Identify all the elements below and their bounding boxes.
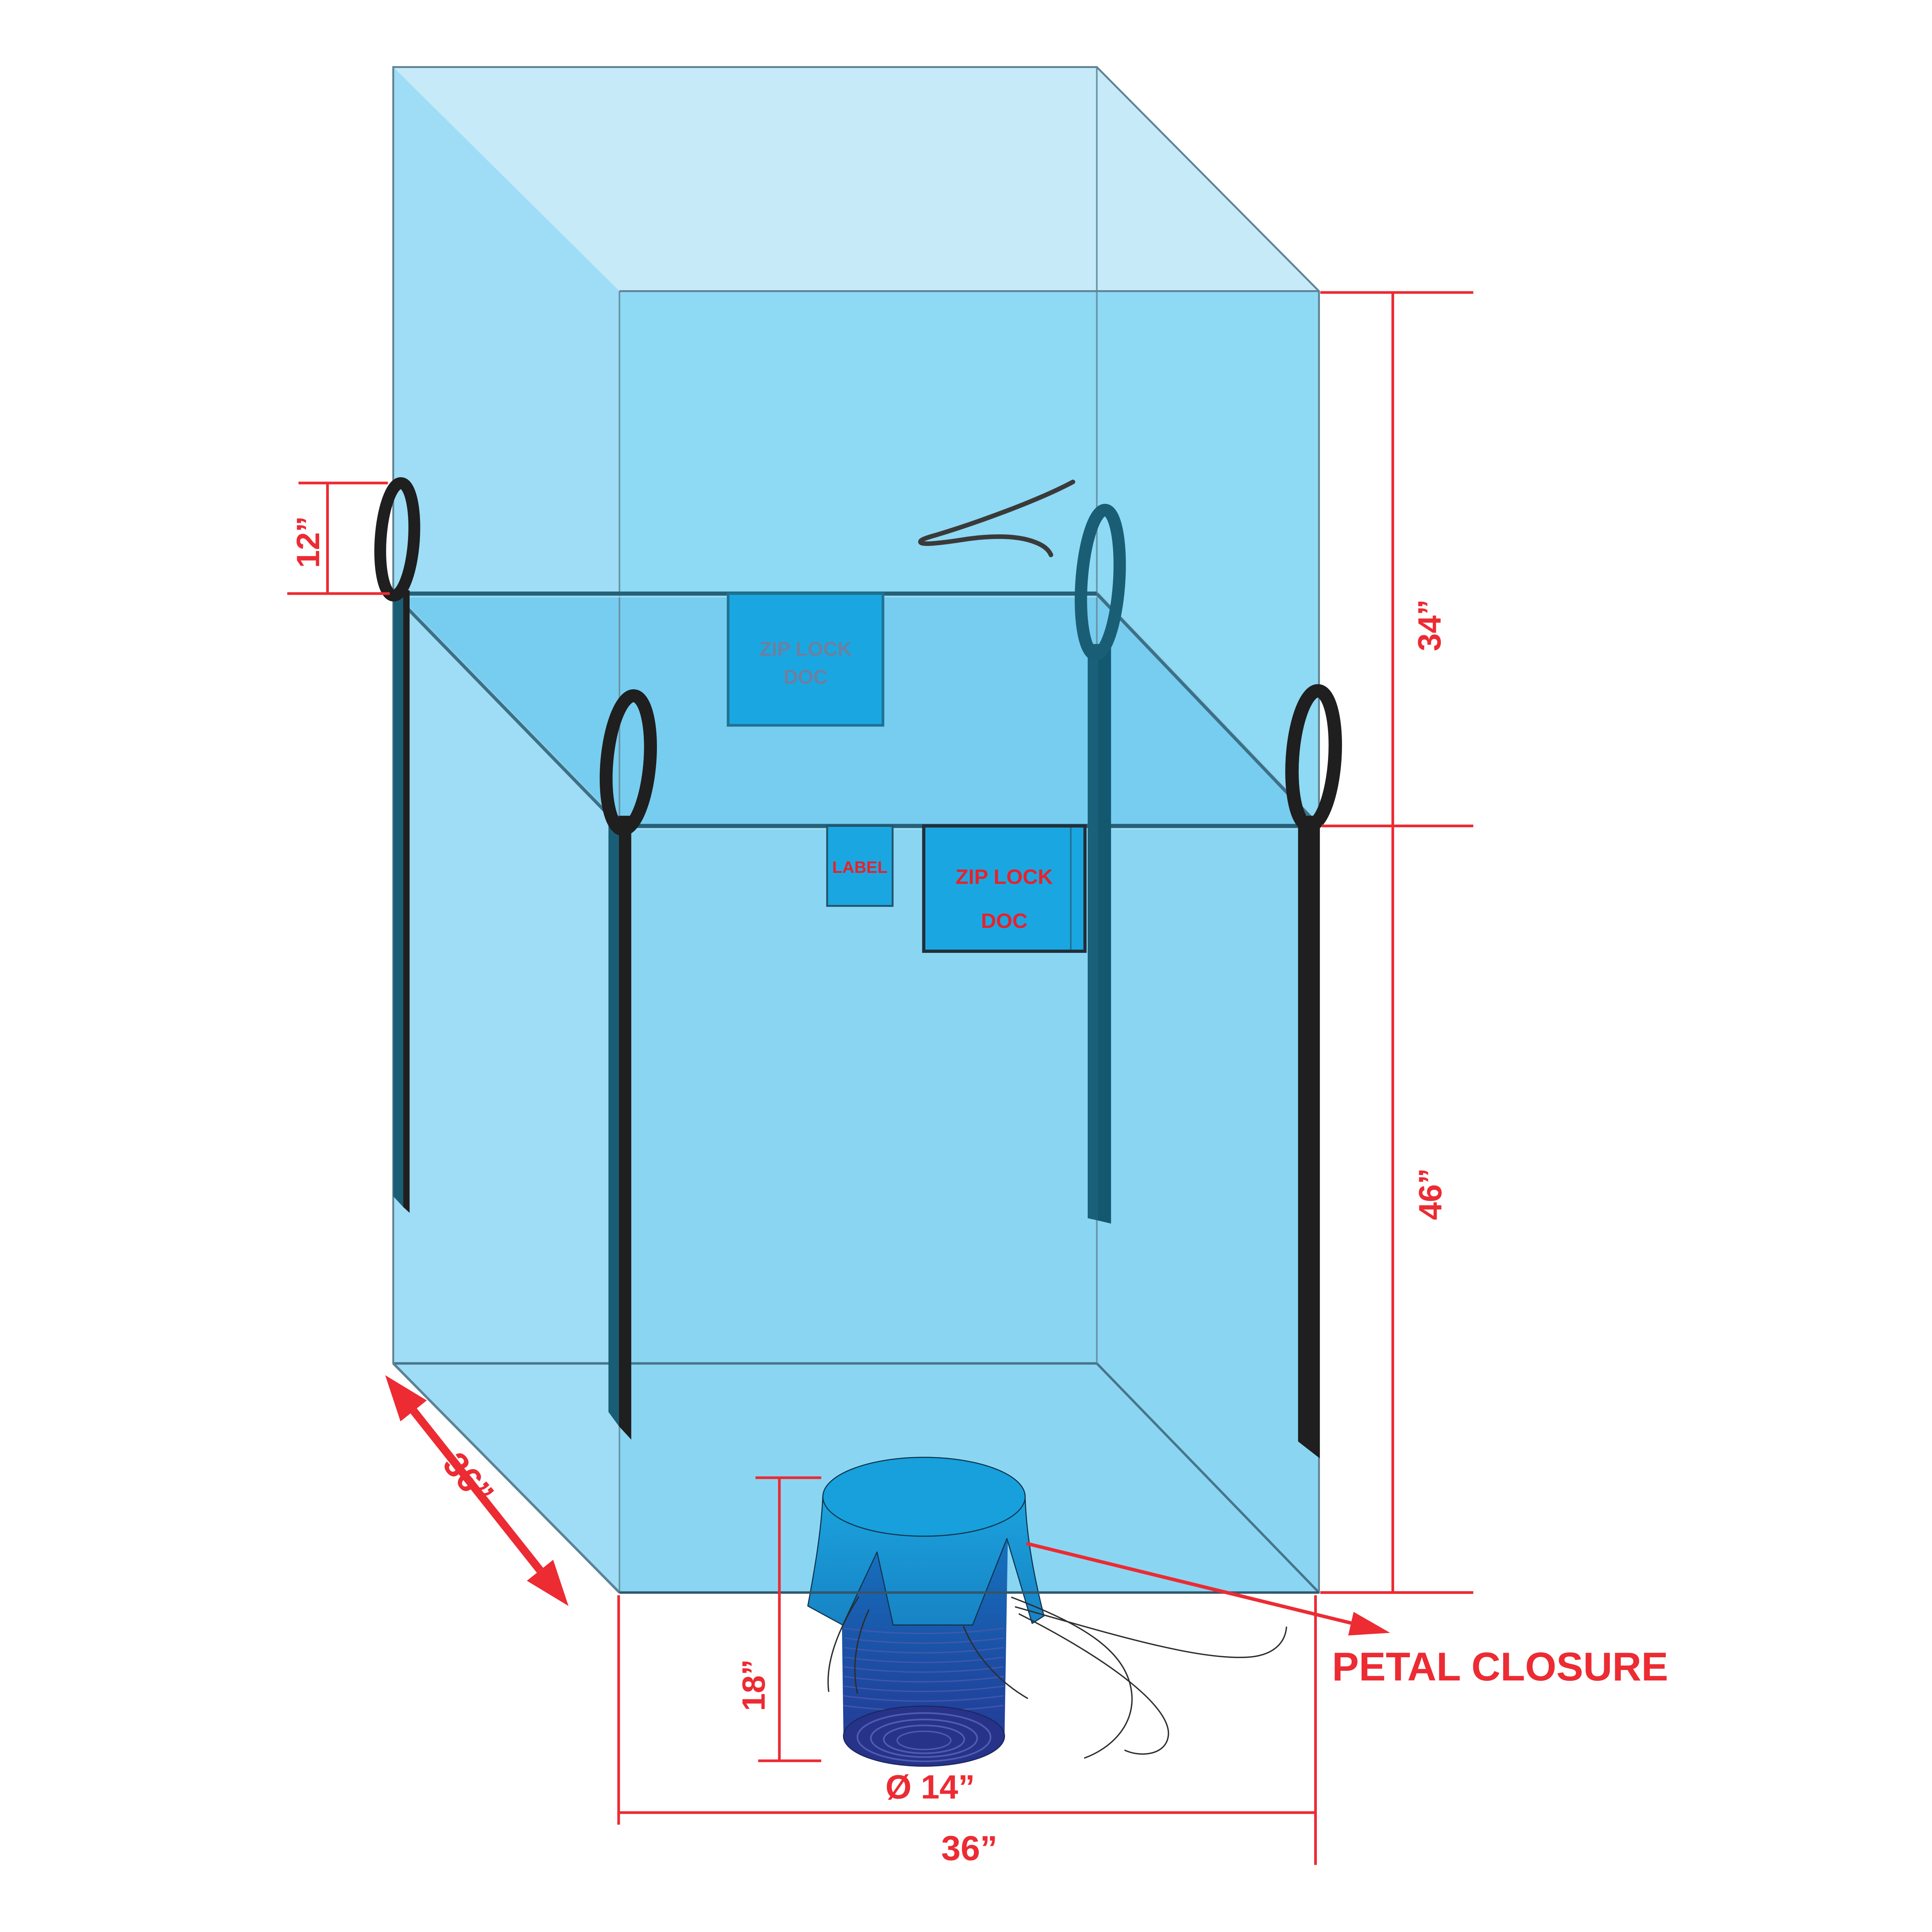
drawing-canvas: ZIP LOCK DOC LABEL ZIP LOCK DOC xyxy=(0,0,1932,1932)
zip-lock-pocket-top-line1: ZIP LOCK xyxy=(760,638,852,660)
loop-strap-back-right-dark xyxy=(1098,644,1111,1224)
petal-closure-arrowhead xyxy=(1348,1612,1390,1636)
loop-strap-back-left-black xyxy=(403,590,410,1213)
dim-text-top-height: 34” xyxy=(1412,599,1447,651)
label-pocket-text: LABEL xyxy=(832,858,888,877)
spout-bottom-cap xyxy=(844,1706,1005,1766)
loop-strap-front-right-black xyxy=(1298,816,1320,1458)
dim-text-base-width: 36” xyxy=(941,1829,998,1868)
label-pocket: LABEL xyxy=(827,826,893,906)
dimension-heights-right xyxy=(1320,293,1473,1593)
bulk-bag-diagram: ZIP LOCK DOC LABEL ZIP LOCK DOC xyxy=(0,0,1932,1932)
dim-text-spout-diameter: Ø 14” xyxy=(886,1769,975,1806)
zip-lock-pocket-front-line1: ZIP LOCK xyxy=(956,865,1053,888)
loop-strap-back-left-teal xyxy=(393,590,403,1207)
dim-text-loop-height: 12” xyxy=(290,516,326,568)
zip-lock-pocket-top-line2: DOC xyxy=(784,665,828,688)
zip-lock-pocket-top: ZIP LOCK DOC xyxy=(728,594,883,725)
dim-text-spout-length: 18” xyxy=(736,1659,772,1711)
zip-lock-pocket-front-line2: DOC xyxy=(981,909,1027,932)
loop-strap-back-right-light xyxy=(1088,644,1098,1221)
spout-top-opening xyxy=(823,1458,1026,1536)
zip-lock-pocket-front: ZIP LOCK DOC xyxy=(924,826,1085,951)
loop-strap-front-left-teal xyxy=(609,816,619,1426)
loop-strap-front-left-black xyxy=(619,816,631,1440)
callout-petal-closure: PETAL CLOSURE xyxy=(1332,1645,1668,1689)
dim-text-body-height: 46” xyxy=(1412,1168,1448,1220)
